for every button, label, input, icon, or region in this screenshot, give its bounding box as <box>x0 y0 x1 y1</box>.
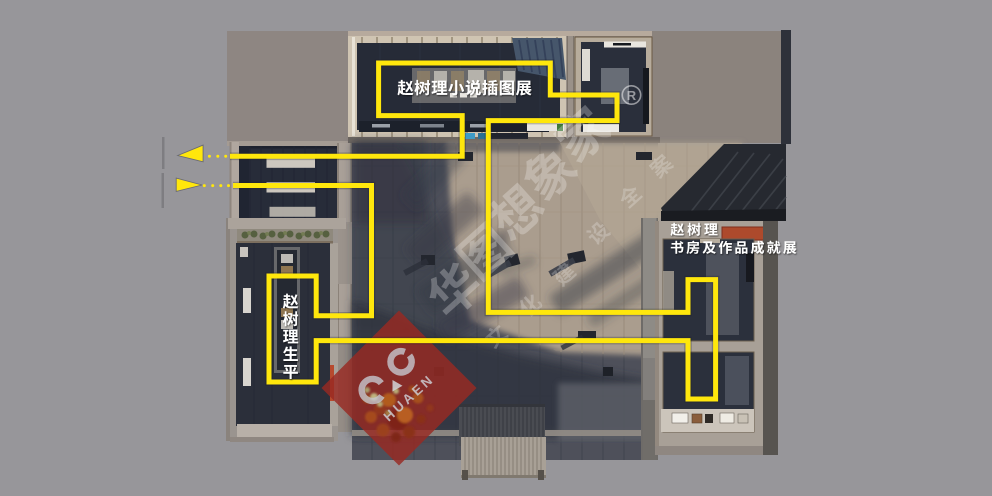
svg-text:R: R <box>627 88 637 103</box>
